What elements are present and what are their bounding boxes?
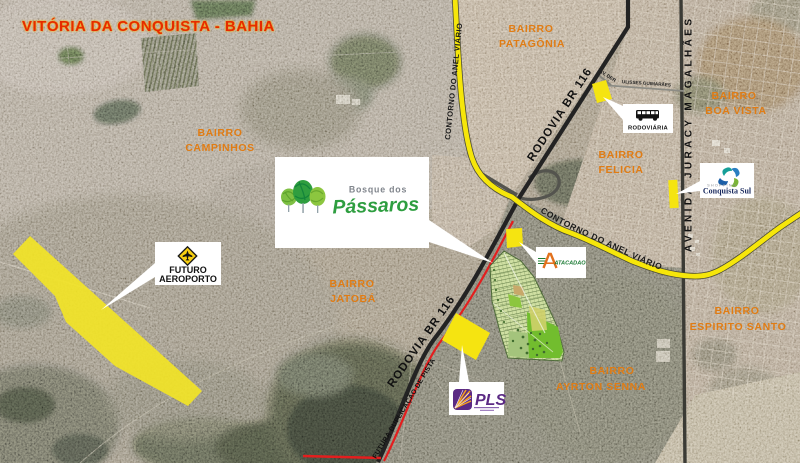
svg-text:PATAGÔNIA: PATAGÔNIA (499, 37, 565, 50)
svg-text:BOA VISTA: BOA VISTA (705, 105, 766, 117)
svg-text:Bosque dos: Bosque dos (349, 185, 407, 195)
svg-text:PLS: PLS (475, 392, 506, 409)
svg-text:BAIRRO: BAIRRO (714, 305, 759, 317)
svg-text:AVENIDA JURACY MAGALHÃES: AVENIDA JURACY MAGALHÃES (682, 16, 695, 252)
svg-text:BAIRRO: BAIRRO (598, 149, 643, 161)
svg-text:RODOVIÁRIA: RODOVIÁRIA (628, 125, 669, 132)
svg-text:FELICIA: FELICIA (598, 164, 643, 176)
svg-text:BAIRRO: BAIRRO (197, 127, 242, 139)
svg-text:Pássaros: Pássaros (332, 193, 420, 218)
svg-text:VITÓRIA DA CONQUISTA - BAHIA: VITÓRIA DA CONQUISTA - BAHIA (22, 17, 275, 35)
svg-text:CAMPINHOS: CAMPINHOS (185, 142, 255, 154)
svg-text:BAIRRO: BAIRRO (589, 365, 634, 377)
svg-text:BAIRRO: BAIRRO (329, 278, 374, 290)
svg-text:BAIRRO: BAIRRO (711, 90, 756, 102)
svg-text:JATOBÁ: JATOBÁ (330, 292, 376, 305)
svg-text:BAIRRO: BAIRRO (508, 23, 553, 35)
svg-text:AYRTON SENNA: AYRTON SENNA (556, 381, 646, 393)
svg-text:AEROPORTO: AEROPORTO (159, 274, 217, 284)
svg-text:ESPIRITO SANTO: ESPIRITO SANTO (690, 321, 787, 333)
svg-text:Conquista Sul: Conquista Sul (703, 187, 752, 196)
svg-text:ATACADAO: ATACADAO (553, 261, 586, 267)
